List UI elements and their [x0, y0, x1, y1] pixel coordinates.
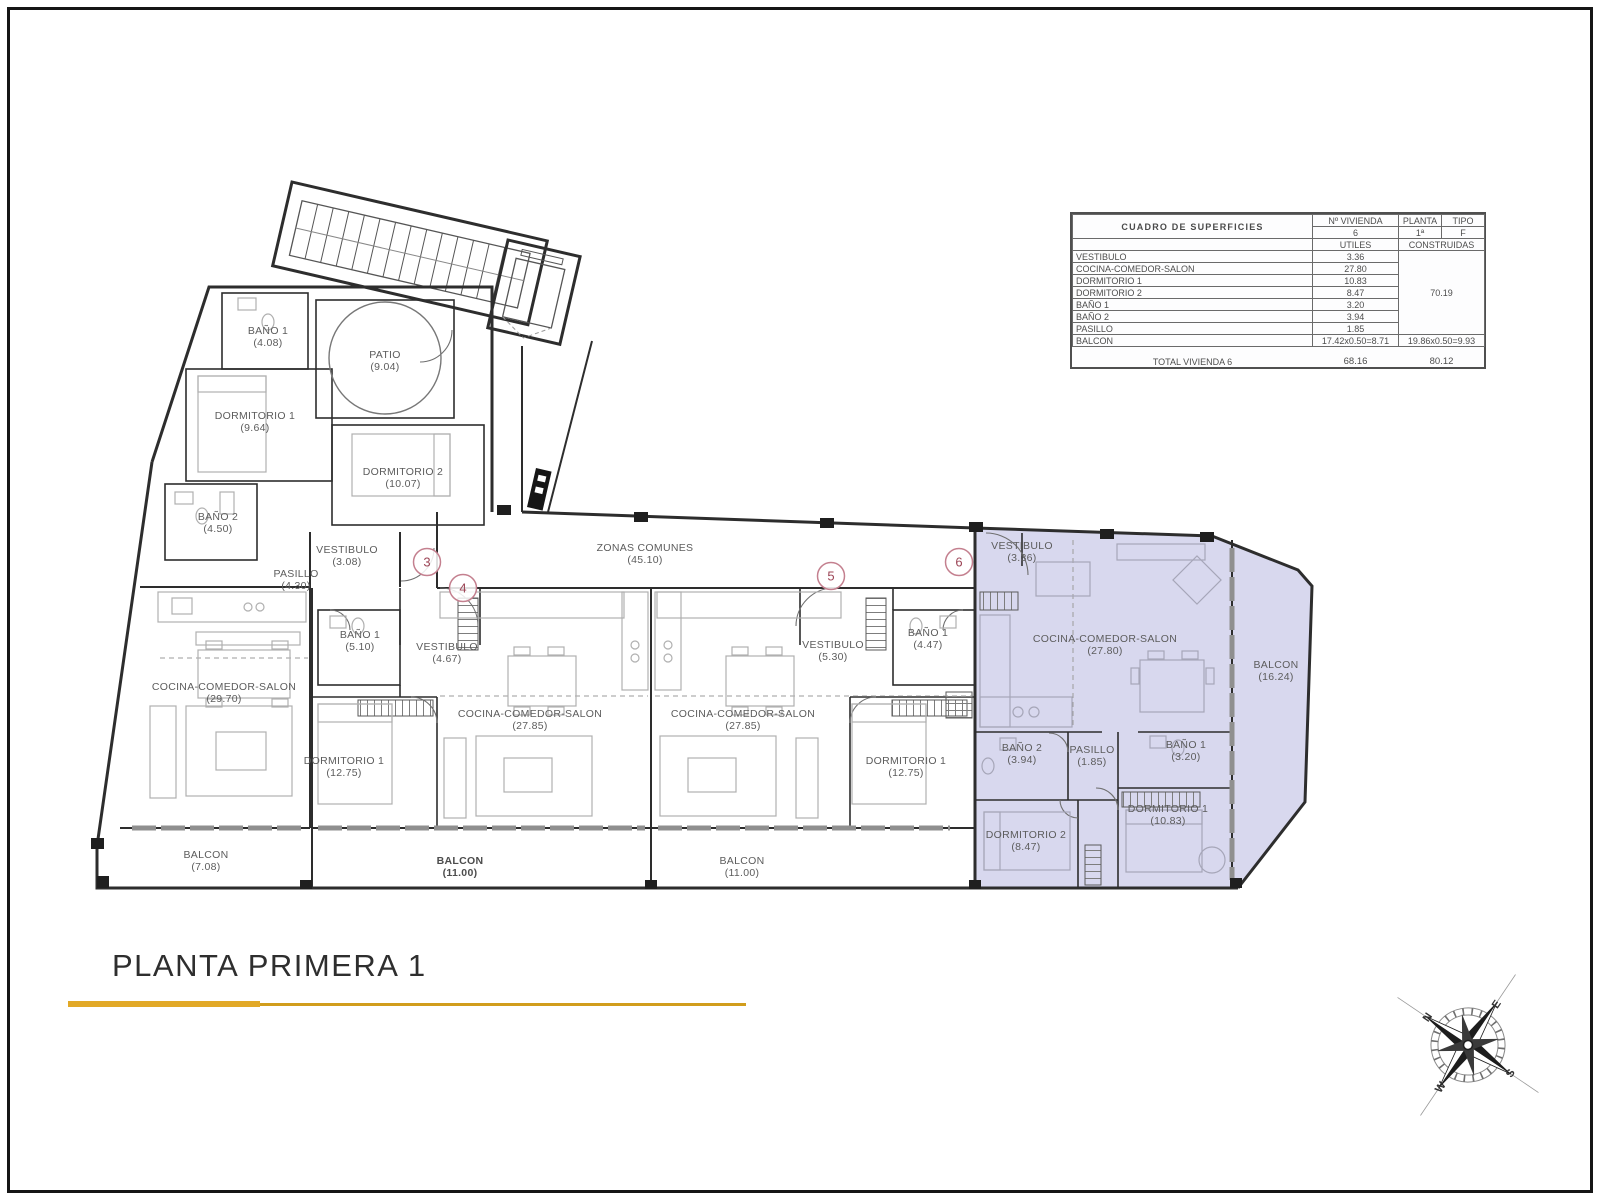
unit-number: 6 — [1313, 227, 1399, 239]
room-label-bano2-apt3: BAÑO 2(4.50) — [198, 510, 238, 535]
room-label-cocina-apt3: COCINA-COMEDOR-SALON(29.70) — [152, 681, 296, 705]
unit-floor: 1ª — [1399, 227, 1442, 239]
room-label-balcon-apt4: BALCON(11.00) — [437, 855, 484, 879]
title-underline-thin — [260, 1003, 746, 1006]
total-row: TOTAL VIVIENDA 6 68.16 80.12 — [1073, 356, 1485, 367]
utiles-cell: 17.42x0.50=8.71 — [1313, 335, 1399, 347]
room-label-balcon-apt3: BALCON(7.08) — [184, 849, 229, 873]
col-construidas: CONSTRUIDAS — [1399, 239, 1485, 251]
room-label-vest-apt5: VESTIBULO(5.30) — [802, 639, 864, 663]
utiles-cell: 3.94 — [1313, 311, 1399, 323]
room-name-cell: VESTIBULO — [1073, 251, 1313, 263]
room-label-bano2-apt6: BAÑO 2(3.94) — [1002, 741, 1042, 766]
room-label-dorm2-apt3: DORMITORIO 2(10.07) — [363, 466, 443, 490]
room-label-bano1-apt4: BAÑO 1(5.10) — [340, 628, 380, 653]
room-name-cell: BAÑO 1 — [1073, 299, 1313, 311]
col-tipo: TIPO — [1442, 215, 1485, 227]
utiles-cell: 1.85 — [1313, 323, 1399, 335]
unit-markers: 3456 — [414, 549, 973, 602]
unit-marker-label-6: 6 — [955, 555, 962, 570]
utiles-cell: 3.36 — [1313, 251, 1399, 263]
utiles-cell: 8.47 — [1313, 287, 1399, 299]
room-label-balcon-apt5: BALCON(11.00) — [720, 855, 765, 879]
floor-plan-svg: BAÑO 1(4.08)PATIO(9.04)DORMITORIO 1(9.64… — [0, 0, 1600, 1200]
col-vivienda: Nº VIVIENDA — [1313, 215, 1399, 227]
table-title: CUADRO DE SUPERFICIES — [1073, 215, 1313, 239]
room-label-vest-apt4: VESTIBULO(4.67) — [416, 641, 478, 665]
utiles-cell: 3.20 — [1313, 299, 1399, 311]
total-label: TOTAL VIVIENDA 6 — [1073, 356, 1313, 367]
room-label-cocina-apt4: COCINA-COMEDOR-SALON(27.85) — [458, 708, 602, 732]
room-name-cell: COCINA-COMEDOR-SALON — [1073, 263, 1313, 275]
unit-marker-label-4: 4 — [459, 581, 466, 596]
utility-cabinet — [527, 468, 552, 511]
room-label-balcon-apt6: BALCON(16.24) — [1254, 659, 1299, 683]
spacer-row — [1073, 347, 1485, 357]
page-title: PLANTA PRIMERA 1 — [112, 948, 427, 984]
col-planta: PLANTA — [1399, 215, 1442, 227]
utiles-cell: 10.83 — [1313, 275, 1399, 287]
total-construidas: 80.12 — [1399, 356, 1485, 367]
unit-marker-label-5: 5 — [827, 569, 834, 584]
blank-cell — [1073, 239, 1313, 251]
table-row-balcon: BALCON 17.42x0.50=8.71 19.86x0.50=9.93 — [1073, 335, 1485, 347]
room-label-patio: PATIO(9.04) — [369, 349, 400, 373]
unit-marker-label-3: 3 — [423, 555, 430, 570]
room-label-bano1-apt3: BAÑO 1(4.08) — [248, 324, 288, 349]
room-name-cell: DORMITORIO 1 — [1073, 275, 1313, 287]
room-name-cell: PASILLO — [1073, 323, 1313, 335]
room-label-cocina-apt5: COCINA-COMEDOR-SALON(27.85) — [671, 708, 815, 732]
construidas-cell: 19.86x0.50=9.93 — [1399, 335, 1485, 347]
room-label-dorm1-apt4: DORMITORIO 1(12.75) — [304, 755, 384, 779]
total-utiles: 68.16 — [1313, 356, 1399, 367]
room-label-bano1-apt5: BAÑO 1(4.47) — [908, 626, 948, 651]
room-label-dorm1-apt5: DORMITORIO 1(12.75) — [866, 755, 946, 779]
compass-rose: N E S W — [1350, 927, 1586, 1163]
construidas-merged-cell: 70.19 — [1399, 251, 1485, 335]
room-name-cell: BAÑO 2 — [1073, 311, 1313, 323]
room-label-vest-apt3: VESTIBULO(3.08) — [316, 544, 378, 568]
room-name-cell: BALCON — [1073, 335, 1313, 347]
title-underline-thick — [68, 1001, 260, 1007]
room-label-zonas-comunes: ZONAS COMUNES(45.10) — [597, 542, 694, 566]
table-row: VESTIBULO3.3670.19 — [1073, 251, 1485, 263]
surface-table: CUADRO DE SUPERFICIES Nº VIVIENDA PLANTA… — [1070, 212, 1486, 369]
unit-type: F — [1442, 227, 1485, 239]
col-utiles: UTILES — [1313, 239, 1399, 251]
compass-south-label: S — [1504, 1067, 1518, 1080]
utiles-cell: 27.80 — [1313, 263, 1399, 275]
room-label-dorm1-apt3: DORMITORIO 1(9.64) — [215, 410, 295, 434]
room-name-cell: DORMITORIO 2 — [1073, 287, 1313, 299]
room-label-bano1-apt6: BAÑO 1(3.20) — [1166, 738, 1206, 763]
